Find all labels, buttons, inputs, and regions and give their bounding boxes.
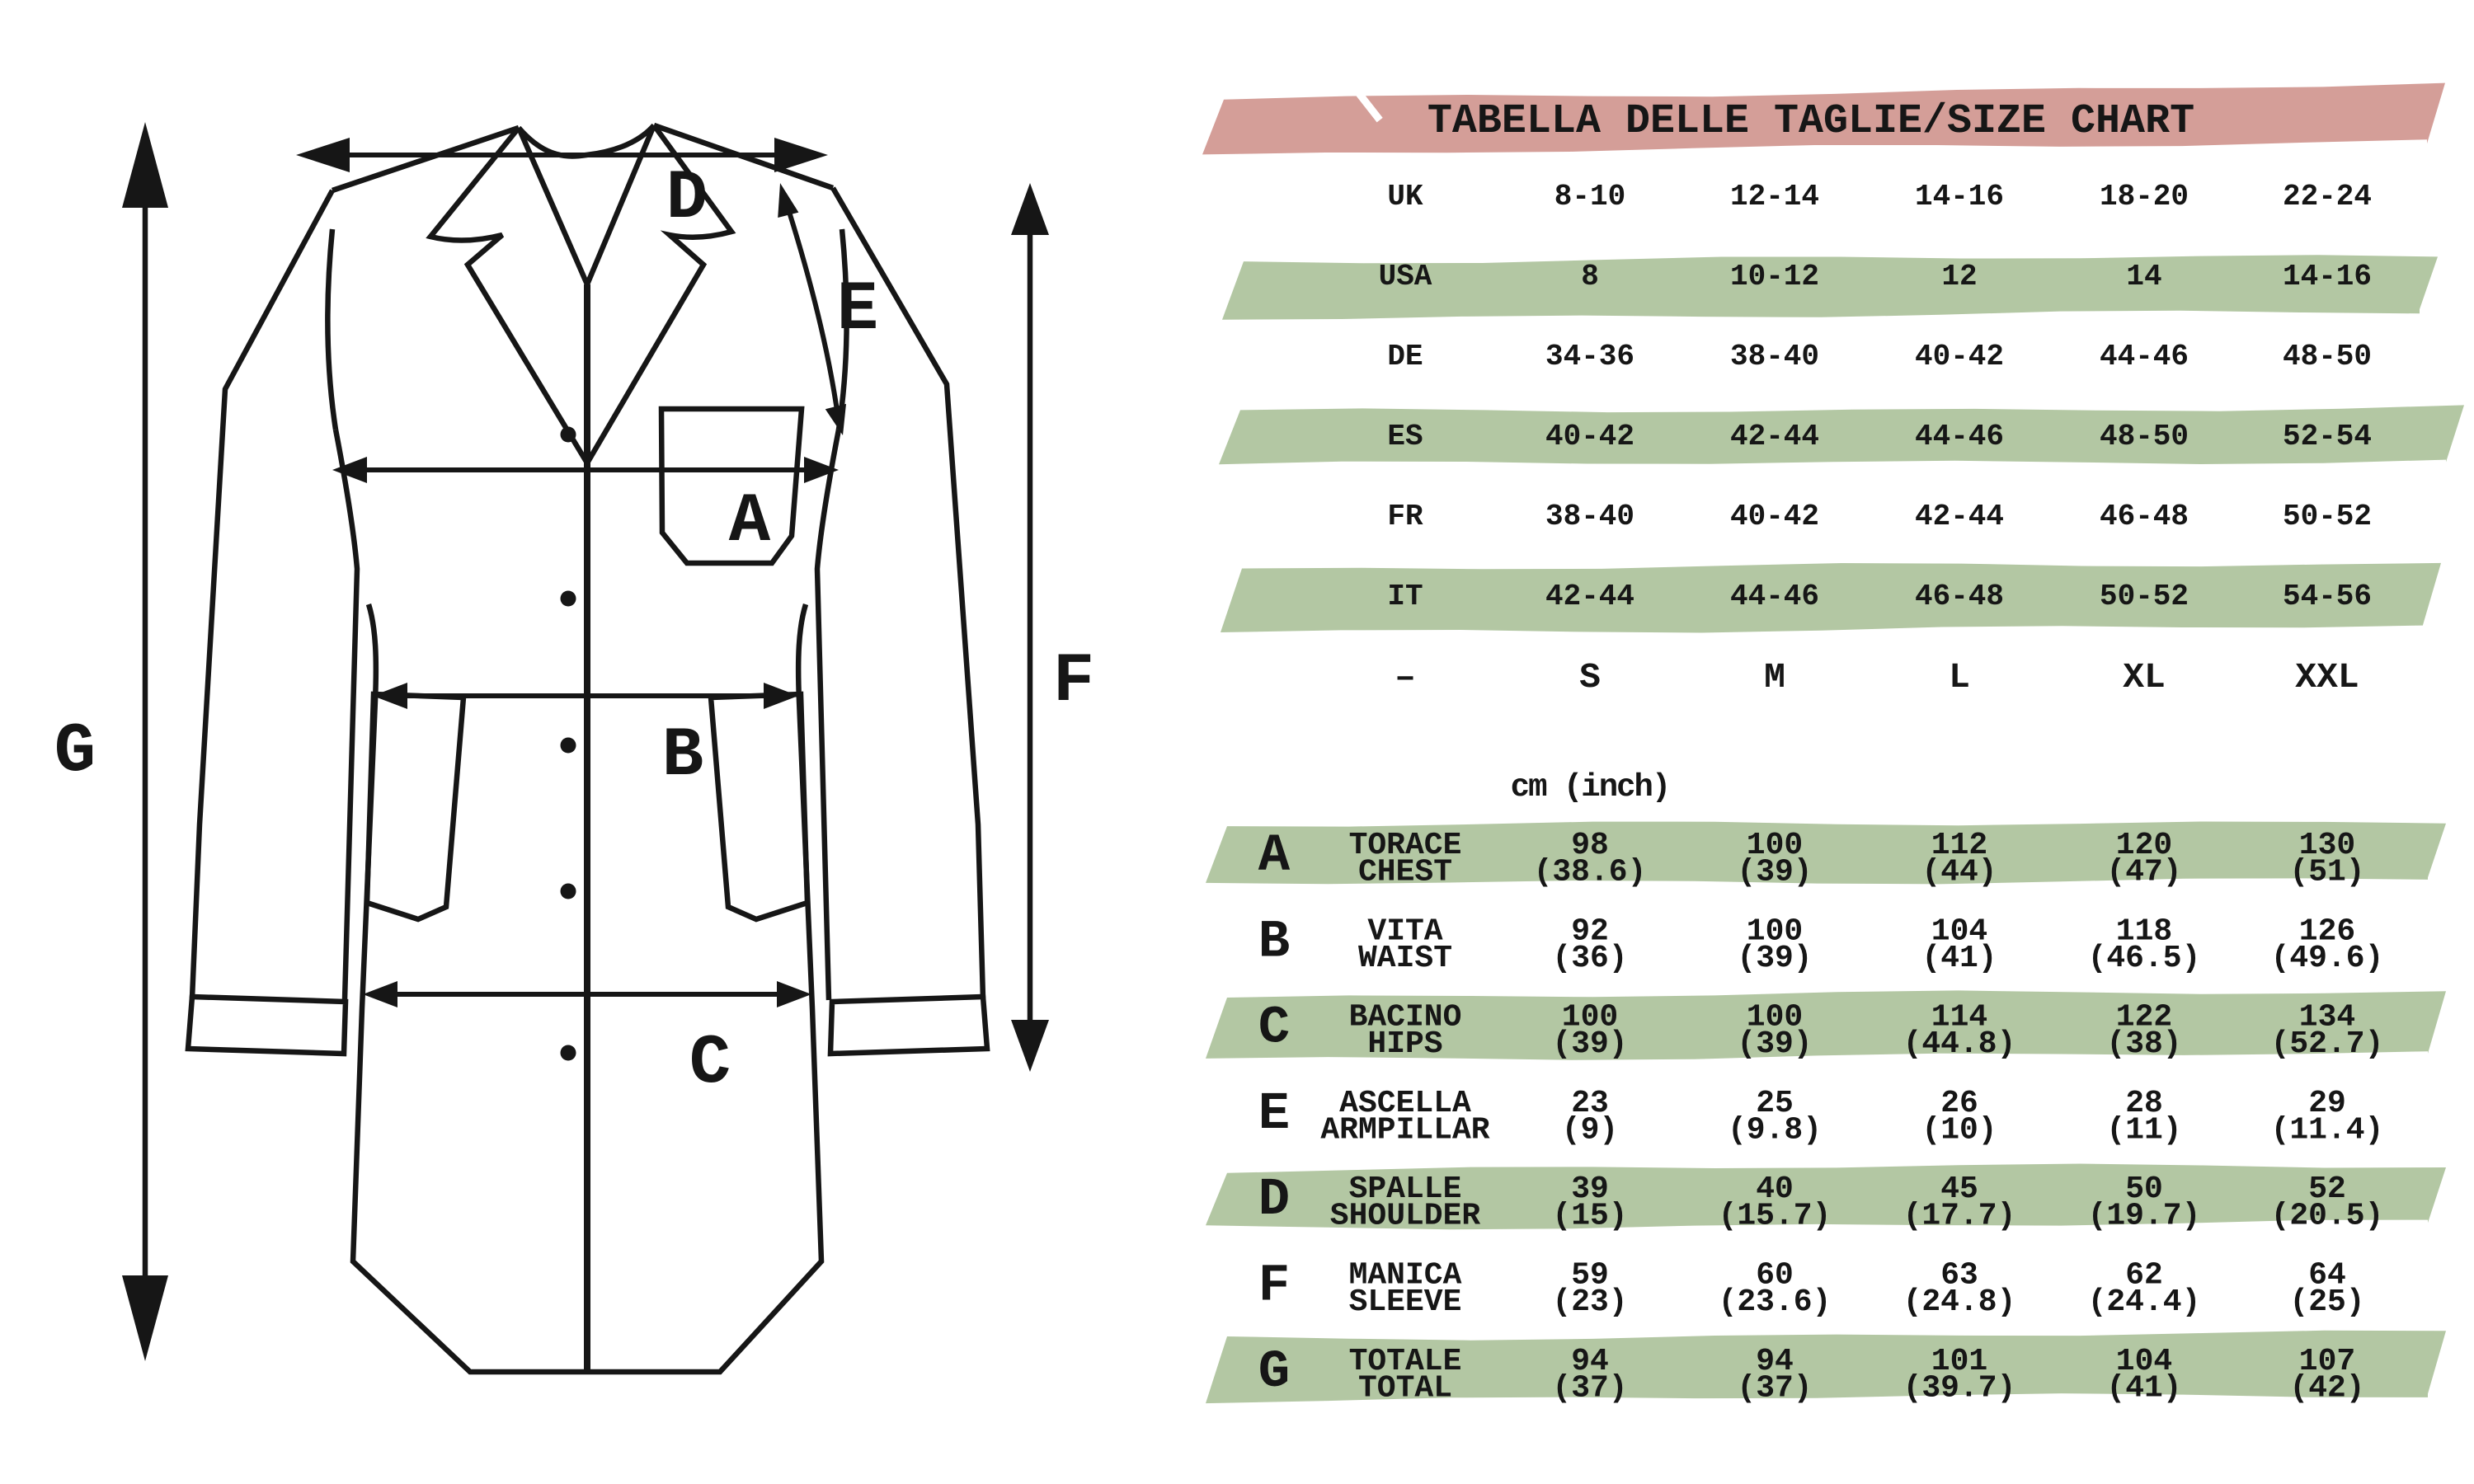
svg-text:(19.7): (19.7) (2088, 1199, 2201, 1234)
svg-text:8-10: 8-10 (1554, 180, 1625, 214)
svg-text:XXL: XXL (2295, 657, 2359, 697)
svg-text:46-48: 46-48 (1915, 580, 2004, 613)
svg-text:38-40: 38-40 (1545, 500, 1634, 533)
svg-text:C: C (1258, 999, 1290, 1059)
svg-text:L: L (1949, 657, 1970, 697)
svg-text:(41): (41) (2106, 1370, 2181, 1406)
svg-text:(37): (37) (1552, 1370, 1627, 1406)
svg-text:(24.8): (24.8) (1903, 1284, 2016, 1320)
svg-text:14-16: 14-16 (1915, 180, 2004, 214)
svg-text:cm (inch): cm (inch) (1511, 769, 1670, 805)
svg-text:ES: ES (1387, 420, 1423, 453)
svg-text:54-56: 54-56 (2283, 580, 2372, 613)
svg-text:(39): (39) (1552, 1026, 1627, 1062)
svg-text:G: G (1258, 1343, 1290, 1402)
svg-text:8: 8 (1581, 260, 1599, 294)
svg-text:(15): (15) (1552, 1199, 1627, 1234)
svg-text:14-16: 14-16 (2283, 260, 2372, 294)
svg-text:(11.4): (11.4) (2271, 1112, 2384, 1148)
svg-text:44-46: 44-46 (1915, 420, 2004, 453)
svg-text:48-50: 48-50 (2283, 340, 2372, 373)
svg-text:(25): (25) (2289, 1284, 2364, 1320)
svg-text:IT: IT (1387, 580, 1423, 613)
svg-text:46-48: 46-48 (2100, 500, 2189, 533)
svg-text:F: F (1053, 643, 1094, 721)
svg-text:(36): (36) (1552, 941, 1627, 976)
svg-text:D: D (666, 160, 708, 238)
svg-text:UK: UK (1387, 180, 1423, 214)
svg-text:(44.8): (44.8) (1903, 1026, 2016, 1062)
svg-text:50-52: 50-52 (2100, 580, 2189, 613)
svg-text:40-42: 40-42 (1730, 500, 1819, 533)
svg-text:40-42: 40-42 (1545, 420, 1634, 453)
svg-text:HIPS: HIPS (1367, 1026, 1442, 1062)
svg-text:G: G (54, 713, 96, 791)
svg-text:(38): (38) (2106, 1026, 2181, 1062)
svg-text:22-24: 22-24 (2283, 180, 2372, 214)
svg-text:D: D (1258, 1171, 1290, 1230)
svg-text:(15.7): (15.7) (1719, 1199, 1832, 1234)
svg-text:(52.7): (52.7) (2271, 1026, 2384, 1062)
svg-text:M: M (1764, 657, 1785, 697)
svg-text:42-44: 42-44 (1730, 420, 1819, 453)
svg-text:S: S (1579, 657, 1601, 697)
svg-text:(20.5): (20.5) (2271, 1199, 2384, 1234)
svg-text:42-44: 42-44 (1545, 580, 1634, 613)
svg-text:(39): (39) (1737, 1026, 1812, 1062)
svg-text:12: 12 (1941, 260, 1977, 294)
svg-text:48-50: 48-50 (2100, 420, 2189, 453)
svg-text:E: E (837, 271, 878, 350)
svg-text:14: 14 (2126, 260, 2161, 294)
svg-text:F: F (1258, 1257, 1290, 1317)
svg-text:40-42: 40-42 (1915, 340, 2004, 373)
svg-text:18-20: 18-20 (2100, 180, 2189, 214)
svg-text:(38.6): (38.6) (1534, 855, 1647, 890)
svg-text:FR: FR (1387, 500, 1423, 533)
svg-text:(49.6): (49.6) (2271, 941, 2384, 976)
svg-text:(39): (39) (1737, 941, 1812, 976)
svg-text:XL: XL (2123, 657, 2166, 697)
svg-text:(46.5): (46.5) (2088, 941, 2201, 976)
svg-text:USA: USA (1379, 260, 1432, 294)
svg-text:WAIST: WAIST (1358, 941, 1452, 976)
svg-text:(23.6): (23.6) (1719, 1284, 1832, 1320)
svg-text:38-40: 38-40 (1730, 340, 1819, 373)
svg-text:(24.4): (24.4) (2088, 1284, 2201, 1320)
svg-text:(44): (44) (1921, 855, 1997, 890)
svg-text:(42): (42) (2289, 1370, 2364, 1406)
svg-text:(11): (11) (2106, 1112, 2181, 1148)
svg-text:(51): (51) (2289, 855, 2364, 890)
svg-text:44-46: 44-46 (1730, 580, 1819, 613)
svg-text:(23): (23) (1552, 1284, 1627, 1320)
svg-text:42-44: 42-44 (1915, 500, 2004, 533)
svg-text:SHOULDER: SHOULDER (1330, 1199, 1481, 1234)
svg-text:(47): (47) (2106, 855, 2181, 890)
svg-text:10-12: 10-12 (1730, 260, 1819, 294)
svg-text:B: B (662, 717, 703, 796)
svg-text:(37): (37) (1737, 1370, 1812, 1406)
svg-text:(39): (39) (1737, 855, 1812, 890)
svg-text:44-46: 44-46 (2100, 340, 2189, 373)
svg-text:50-52: 50-52 (2283, 500, 2372, 533)
svg-text:(17.7): (17.7) (1903, 1199, 2016, 1234)
svg-text:B: B (1258, 913, 1290, 972)
svg-text:34-36: 34-36 (1545, 340, 1634, 373)
svg-text:TABELLA DELLE TAGLIE/SIZE CHAR: TABELLA DELLE TAGLIE/SIZE CHART (1427, 98, 2194, 145)
svg-text:12-14: 12-14 (1730, 180, 1819, 214)
svg-text:C: C (689, 1025, 731, 1103)
svg-text:(10): (10) (1921, 1112, 1997, 1148)
svg-text:A: A (1258, 827, 1291, 886)
svg-text:ARMPILLAR: ARMPILLAR (1320, 1112, 1489, 1148)
svg-text:TOTAL: TOTAL (1358, 1370, 1452, 1406)
svg-text:CHEST: CHEST (1358, 855, 1452, 890)
svg-text:A: A (729, 483, 771, 561)
svg-text:E: E (1258, 1085, 1290, 1144)
svg-text:(39.7): (39.7) (1903, 1370, 2016, 1406)
svg-text:(41): (41) (1921, 941, 1997, 976)
svg-text:(9): (9) (1562, 1112, 1618, 1148)
svg-text:(9.8): (9.8) (1728, 1112, 1822, 1148)
svg-text:52-54: 52-54 (2283, 420, 2372, 453)
svg-text:SLEEVE: SLEEVE (1349, 1284, 1462, 1320)
svg-text:–: – (1395, 657, 1416, 697)
svg-text:DE: DE (1387, 340, 1423, 373)
